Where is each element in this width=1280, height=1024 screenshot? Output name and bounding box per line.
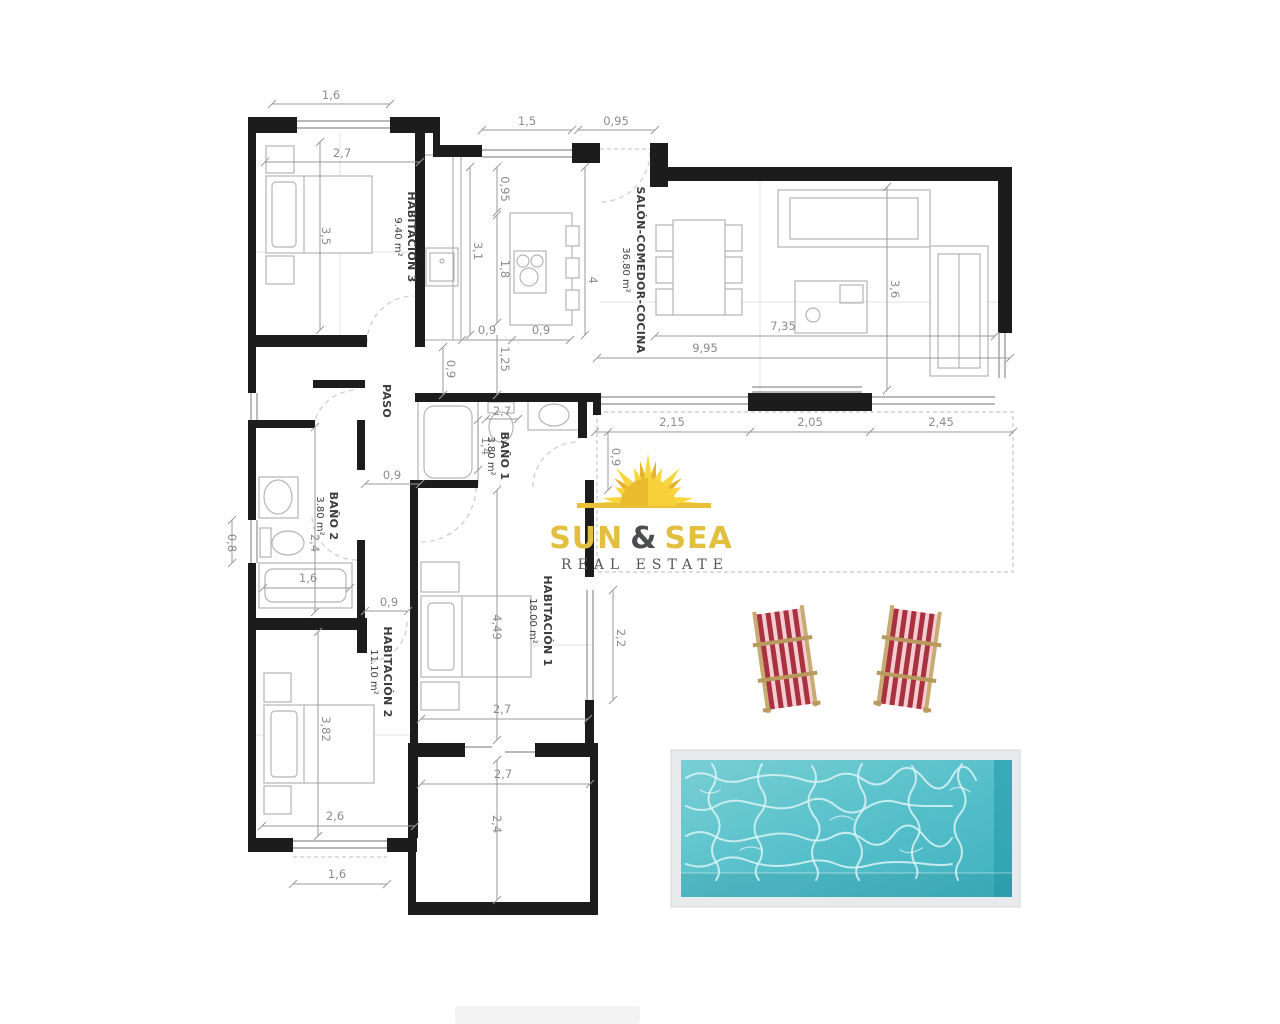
dim-label: 3,6	[888, 280, 902, 298]
dim-label: 2,7	[333, 146, 351, 160]
dim-label: 1,25	[498, 346, 512, 372]
dim-label: 0,9	[383, 468, 401, 482]
dim-label: 1,8	[498, 260, 512, 278]
room-area-habitacion-2: 11.10 m²	[368, 649, 379, 695]
bed	[264, 705, 374, 783]
bathtub	[259, 563, 352, 608]
dim-label: 2,15	[659, 415, 685, 429]
dim-label: 3,1	[471, 242, 485, 260]
dim-label: 2,7	[493, 702, 511, 716]
dim-label: 4,49	[490, 614, 504, 640]
pool	[671, 750, 1020, 907]
chair	[724, 289, 742, 315]
dim-label: 2,2	[614, 629, 628, 647]
dim-label: 3,5	[319, 227, 333, 245]
toilet	[260, 528, 271, 557]
stool	[566, 290, 579, 310]
dim-label: 2,7	[493, 404, 511, 418]
dim-label: 2,4	[490, 815, 504, 833]
room-label-habitacion-1: HABITACIÓN 1	[541, 575, 554, 666]
room-label-bano-2: BAÑO 2	[327, 492, 340, 541]
dim-label: 2,45	[928, 415, 954, 429]
deck-chair-left	[748, 604, 822, 713]
bathtub	[418, 400, 478, 484]
dim-label: 0,95	[498, 176, 512, 202]
nightstand	[266, 146, 294, 173]
dim-label: 0,95	[603, 114, 629, 128]
kitchen-island	[510, 213, 572, 325]
dim-label: 0,9	[380, 595, 398, 609]
nightstand	[266, 256, 294, 284]
room-area-habitacion-3: 9.40 m²	[392, 217, 403, 256]
chair	[656, 225, 674, 251]
door-arc	[367, 296, 414, 343]
bed	[421, 596, 531, 677]
sink	[539, 404, 569, 426]
room-area-salon: 36.80 m²	[620, 247, 631, 293]
sink	[264, 480, 292, 514]
chair	[656, 257, 674, 283]
room-label-paso: PASO	[380, 384, 393, 418]
sliding-door	[748, 393, 872, 411]
room-area-bano-1: 3.80 m²	[485, 436, 496, 475]
chair	[724, 257, 742, 283]
dim-label: 0,9	[478, 323, 496, 337]
door-arc	[421, 487, 476, 542]
room-area-bano-2: 3.80 m²	[314, 496, 325, 535]
stool	[566, 258, 579, 278]
dim-label: 2,05	[797, 415, 823, 429]
furniture-habitacion-3	[266, 146, 372, 284]
dim-label: 0,9	[609, 448, 623, 466]
dim-label: 3,82	[319, 716, 333, 742]
dim-label: 1,5	[518, 114, 536, 128]
bed	[266, 176, 372, 253]
dim-label: 0,8	[225, 534, 239, 552]
dining-table	[673, 220, 725, 315]
dim-label: 0,9	[532, 323, 550, 337]
dim-label: 1,6	[328, 867, 346, 881]
door-arc	[313, 390, 358, 427]
dim-label: 0,9	[444, 360, 458, 378]
room-label-habitacion-3: HABITACIÓN 3	[405, 191, 418, 282]
nightstand	[264, 786, 291, 814]
dim-label: 2,4	[308, 534, 322, 552]
watermark-remnant	[455, 1006, 640, 1024]
dim-label: 7,35	[770, 319, 796, 333]
brand-tagline: REAL ESTATE	[561, 557, 729, 573]
floorplan-drawing: 1,6 2,7 3,5 1,5 0,95 0,95 3,1 1,8 4 3,6 …	[0, 0, 1280, 1024]
stool	[566, 226, 579, 246]
floorplan-page: 1,6 2,7 3,5 1,5 0,95 0,95 3,1 1,8 4 3,6 …	[0, 0, 1280, 1024]
dim-label: 1,6	[322, 88, 340, 102]
dim-label: 1,6	[299, 571, 317, 585]
room-area-habitacion-1: 18.00 m²	[527, 598, 538, 644]
logo: SUN&SEA REAL ESTATE	[549, 454, 733, 573]
dim-label: 2,6	[326, 809, 344, 823]
room-label-habitacion-2: HABITACIÓN 2	[381, 626, 394, 717]
room-label-bano-1: BAÑO 1	[498, 432, 511, 481]
dim-label: 4	[586, 276, 600, 283]
chair	[656, 289, 674, 315]
deck-chair-right	[872, 604, 946, 713]
nightstand	[421, 562, 459, 592]
chair	[724, 225, 742, 251]
brand-wordmark: SUN&SEA	[549, 521, 733, 556]
furniture-habitacion-1	[421, 562, 531, 710]
nightstand	[264, 673, 291, 702]
nightstand	[421, 682, 459, 710]
door-arc	[533, 442, 578, 487]
dim-label: 2,7	[494, 767, 512, 781]
room-label-salon: SALÓN-COMEDOR-COCINA	[634, 187, 647, 354]
furniture-habitacion-2	[264, 673, 374, 814]
rug	[795, 281, 867, 333]
dim-label: 9,95	[692, 341, 718, 355]
